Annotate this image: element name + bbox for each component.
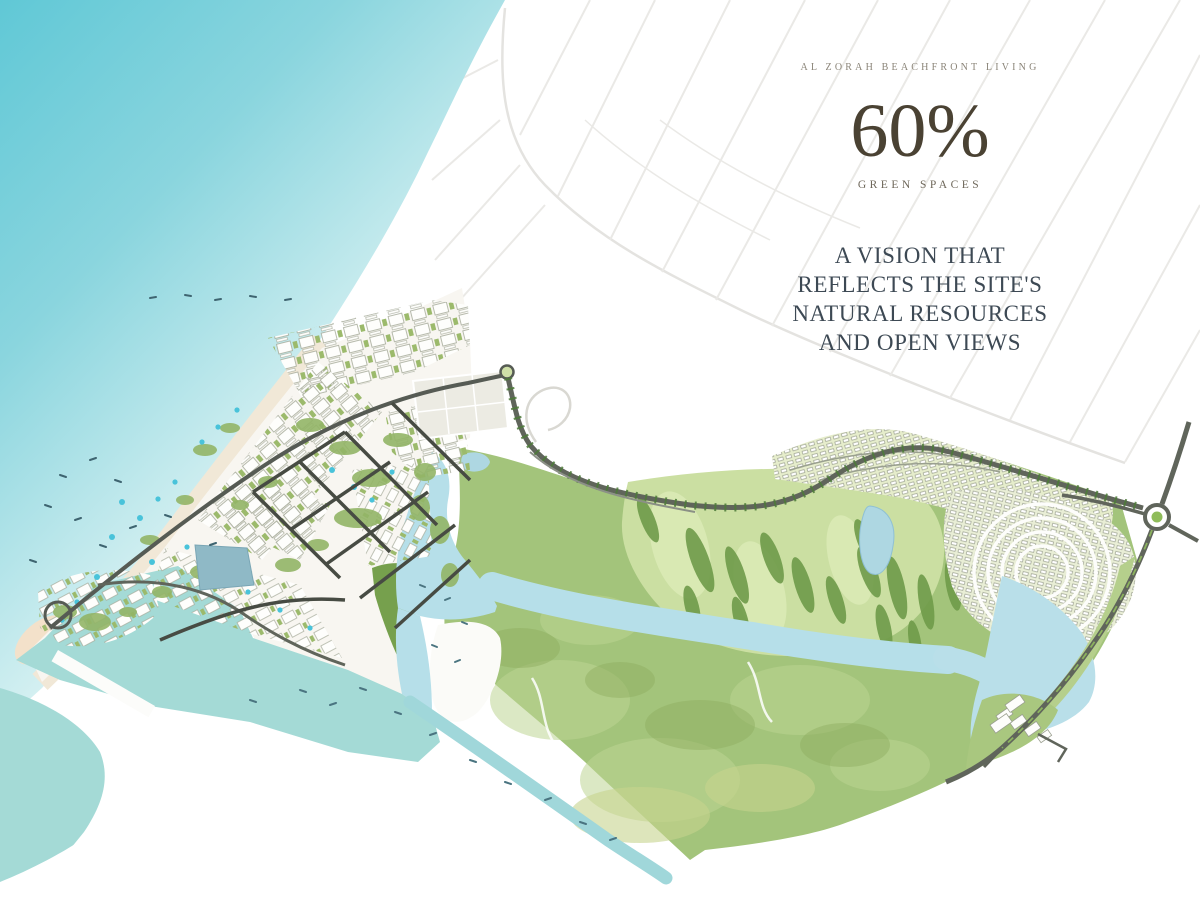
headline-line-1: A VISION THAT [752, 241, 1088, 270]
green-space-stat-label: GREEN SPACES [752, 179, 1088, 191]
headline: A VISION THAT REFLECTS THE SITE'S NATURA… [752, 241, 1088, 357]
headline-line-2: REFLECTS THE SITE'S [752, 270, 1088, 299]
masterplan-page: AL ZORAH BEACHFRONT LIVING 60% GREEN SPA… [0, 0, 1200, 900]
small-roundabout [501, 366, 514, 379]
headline-line-4: AND OPEN VIEWS [752, 328, 1088, 357]
tagline: AL ZORAH BEACHFRONT LIVING [752, 62, 1088, 73]
marketing-overlay: AL ZORAH BEACHFRONT LIVING 60% GREEN SPA… [752, 62, 1088, 357]
green-space-stat: 60% [752, 95, 1088, 167]
downtown-basin [195, 545, 254, 590]
development-parcel [413, 371, 508, 439]
headline-line-3: NATURAL RESOURCES [752, 299, 1088, 328]
